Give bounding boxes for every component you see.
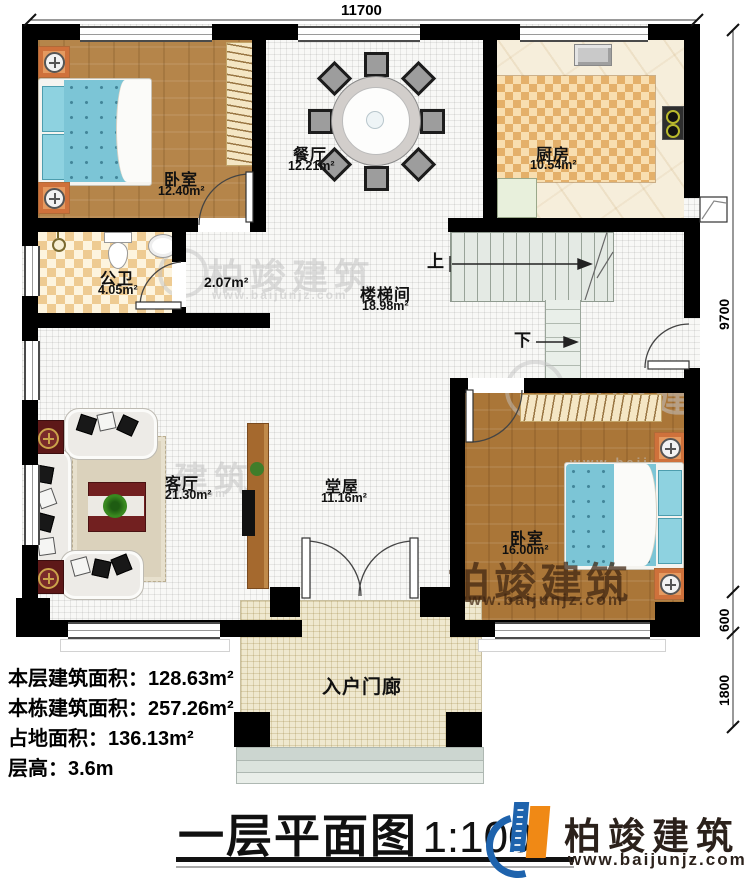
chair-icon <box>364 166 389 191</box>
window <box>298 26 420 42</box>
stat-value: 128.63m² <box>148 668 234 690</box>
window-sill <box>60 639 230 652</box>
stair-flight-up <box>450 232 614 302</box>
room-area-stairwell: 18.98m² <box>362 299 409 313</box>
stat-value: 3.6m <box>68 758 114 780</box>
window <box>24 246 40 296</box>
stat-value: 257.26m² <box>148 698 234 720</box>
lamp-icon <box>660 438 681 459</box>
dimension-tick <box>727 586 739 598</box>
stat-row: 层高：3.6m <box>8 754 234 784</box>
stairs-up-label: 上 <box>427 247 445 272</box>
stat-row: 占地面积：136.13m² <box>8 724 234 754</box>
wall-column <box>234 712 270 747</box>
wall <box>22 24 38 246</box>
medallion-icon <box>38 428 59 449</box>
room-label-porch: 入户门廊 <box>322 672 402 699</box>
window-sill <box>478 639 666 652</box>
wall <box>450 378 465 620</box>
wall <box>252 24 266 232</box>
stat-row: 本层建筑面积：128.63m² <box>8 664 234 694</box>
bed-pillow <box>42 86 66 132</box>
wall <box>22 313 270 328</box>
door-opening <box>468 378 524 393</box>
window <box>520 26 648 42</box>
wall <box>483 24 497 232</box>
kitchen-sink <box>574 44 612 66</box>
bed-pillow <box>42 134 66 180</box>
wall <box>684 222 700 318</box>
chair-icon <box>420 109 445 134</box>
stat-value: 136.13m² <box>108 728 194 750</box>
stat-label: 层高： <box>8 758 68 780</box>
wall <box>420 24 520 40</box>
bed-blanket-fold <box>116 80 151 182</box>
window <box>24 341 40 400</box>
dimension-tick <box>727 24 739 36</box>
brand-logo-icon <box>486 806 550 870</box>
room-area-living: 21.30m² <box>165 488 212 502</box>
room-area-dining: 12.21m² <box>288 159 335 173</box>
stairs-down-label: 下 <box>514 326 532 351</box>
watermark-url: www.baijunjz.com <box>212 288 372 302</box>
wall-column <box>446 712 482 747</box>
lamp-icon <box>44 52 65 73</box>
room-area-bedroom-left: 12.40m² <box>158 184 205 198</box>
wardrobe <box>520 394 662 422</box>
room-area-bedroom-right: 16.00m² <box>502 543 549 557</box>
wall <box>448 218 700 232</box>
wall <box>684 368 700 602</box>
dimension-tick <box>727 721 739 733</box>
dimension-right-mid: 600 <box>716 609 732 632</box>
wall <box>684 24 700 198</box>
floor-plan: 柏竣建筑 www.baijunjz.com 柏竣建筑 www.baijunjz.… <box>0 0 750 879</box>
stove-burner-icon <box>666 110 680 124</box>
watermark-url: www.baijunjz.com <box>454 592 654 610</box>
wall <box>22 545 38 598</box>
room-area-bathroom: 4.05m² <box>98 283 138 297</box>
lamp-icon <box>44 188 65 209</box>
rear-door-stoop <box>700 197 727 222</box>
window <box>68 622 220 639</box>
brand-url: www.baijunjz.com <box>568 850 747 870</box>
plant-icon <box>250 462 264 476</box>
stove-burner-icon <box>666 124 680 138</box>
chair-icon <box>308 109 333 134</box>
dimension-right-lower: 1800 <box>716 675 732 706</box>
sofa-pillow <box>96 411 116 431</box>
shower-icon <box>52 238 66 252</box>
plant-icon <box>103 494 127 518</box>
room-area-kitchen: 10.54m² <box>530 158 577 172</box>
wall-column <box>270 587 300 617</box>
room-area-hall: 11.16m² <box>321 491 367 505</box>
tv-icon <box>242 490 255 536</box>
chair-icon <box>364 52 389 77</box>
window <box>24 465 40 545</box>
dining-table-hub <box>366 111 384 129</box>
rear-door-stoop-line <box>702 201 726 219</box>
stat-row: 本栋建筑面积：257.26m² <box>8 694 234 724</box>
window <box>495 622 650 639</box>
wall <box>22 400 38 465</box>
door-opening <box>198 218 250 232</box>
area-stats: 本层建筑面积：128.63m² 本栋建筑面积：257.26m² 占地面积：136… <box>8 664 234 784</box>
title-text: 一层平面图 <box>178 810 418 862</box>
stat-label: 本栋建筑面积： <box>8 698 148 720</box>
wardrobe <box>226 42 254 166</box>
dimension-top: 11700 <box>341 2 382 19</box>
sofa-pillow <box>91 558 111 578</box>
dimension-right-upper: 9700 <box>716 299 732 330</box>
room-area-corridor: 2.07m² <box>204 274 248 290</box>
porch-step <box>236 772 484 784</box>
fridge <box>497 178 537 218</box>
medallion-icon <box>38 568 59 589</box>
bed-pillow <box>658 470 682 516</box>
wall-column <box>420 587 450 617</box>
stat-label: 占地面积： <box>8 728 108 750</box>
door-opening <box>172 262 186 307</box>
stat-label: 本层建筑面积： <box>8 668 148 690</box>
window <box>80 26 212 42</box>
